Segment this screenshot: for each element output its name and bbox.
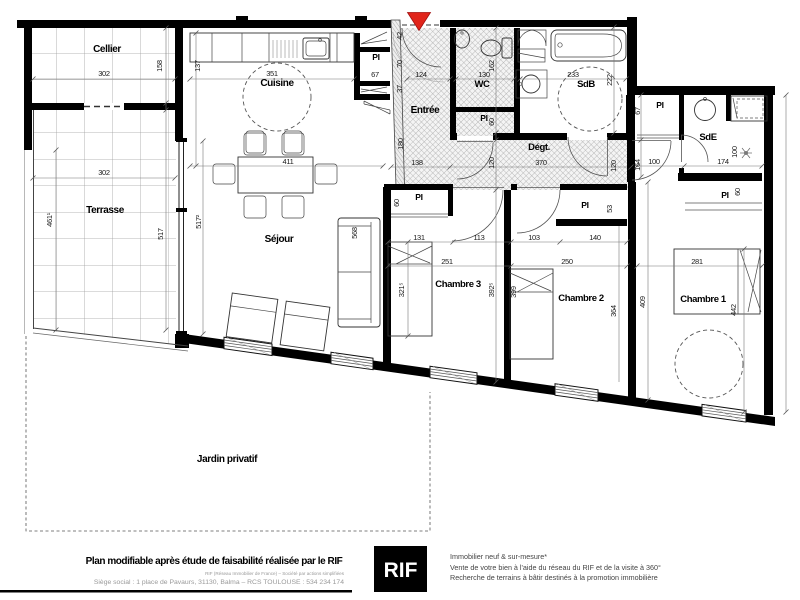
svg-text:364: 364 <box>609 305 618 317</box>
svg-text:42: 42 <box>395 32 404 40</box>
svg-text:392⁵: 392⁵ <box>487 283 496 298</box>
svg-text:411: 411 <box>282 157 293 166</box>
svg-text:PI: PI <box>415 192 422 202</box>
svg-text:Jardin privatif: Jardin privatif <box>197 454 258 465</box>
svg-text:Chambre 2: Chambre 2 <box>558 293 604 304</box>
svg-text:103: 103 <box>528 233 540 242</box>
svg-text:222: 222 <box>605 74 614 86</box>
svg-text:409: 409 <box>638 296 647 308</box>
svg-text:PI: PI <box>581 200 588 210</box>
svg-text:120: 120 <box>609 160 618 172</box>
svg-text:53: 53 <box>605 205 614 213</box>
svg-text:67: 67 <box>633 107 642 115</box>
svg-text:Chambre 1: Chambre 1 <box>680 294 727 305</box>
svg-text:SdB: SdB <box>577 79 595 90</box>
svg-text:517: 517 <box>156 228 165 240</box>
svg-text:120: 120 <box>487 157 496 169</box>
svg-text:131: 131 <box>413 233 425 242</box>
svg-text:174: 174 <box>717 157 729 166</box>
svg-text:Siège social : 1 place de Pava: Siège social : 1 place de Pavaurs, 31130… <box>94 579 344 586</box>
svg-text:100: 100 <box>730 146 739 158</box>
svg-text:RIF (Réseau Immobilier de Fran: RIF (Réseau Immobilier de France) – Soci… <box>205 571 345 576</box>
svg-text:180: 180 <box>396 138 405 150</box>
svg-text:137: 137 <box>193 60 202 72</box>
svg-text:302: 302 <box>98 69 110 78</box>
svg-text:399: 399 <box>509 286 518 298</box>
svg-text:67: 67 <box>371 70 379 79</box>
svg-text:164: 164 <box>633 159 642 171</box>
svg-text:124: 124 <box>415 70 427 79</box>
svg-text:Cellier: Cellier <box>93 44 121 55</box>
svg-text:RIF: RIF <box>384 559 418 582</box>
svg-text:WC: WC <box>474 79 490 90</box>
svg-text:60: 60 <box>733 188 742 196</box>
svg-text:Entrée: Entrée <box>411 105 441 116</box>
svg-text:442: 442 <box>729 304 738 316</box>
svg-text:Vente de votre bien à l'aide d: Vente de votre bien à l'aide du réseau d… <box>450 563 661 572</box>
svg-text:Dégt.: Dégt. <box>528 142 550 153</box>
svg-text:158: 158 <box>155 60 164 72</box>
svg-text:517²: 517² <box>194 214 203 229</box>
svg-text:370: 370 <box>535 158 547 167</box>
svg-text:70: 70 <box>395 60 404 68</box>
svg-text:251: 251 <box>441 257 453 266</box>
svg-text:461¹: 461¹ <box>45 212 54 227</box>
svg-text:302: 302 <box>98 168 110 177</box>
svg-text:Séjour: Séjour <box>265 234 294 245</box>
svg-text:Recherche de terrains à bâtir: Recherche de terrains à bâtir destinés à… <box>450 573 658 582</box>
svg-text:100: 100 <box>648 157 660 166</box>
svg-text:PI: PI <box>372 52 379 62</box>
svg-text:SdE: SdE <box>699 132 716 143</box>
svg-text:351: 351 <box>266 69 278 78</box>
svg-text:568: 568 <box>350 227 359 239</box>
svg-text:138: 138 <box>411 158 423 167</box>
svg-text:113: 113 <box>473 233 484 242</box>
svg-text:162: 162 <box>487 60 496 72</box>
svg-text:321⁵: 321⁵ <box>397 283 406 298</box>
svg-text:Cuisine: Cuisine <box>260 78 294 89</box>
svg-text:PI: PI <box>656 100 663 110</box>
svg-text:281: 281 <box>691 257 703 266</box>
svg-text:Immobilier neuf & sur-mesure*: Immobilier neuf & sur-mesure* <box>450 552 547 561</box>
svg-text:60: 60 <box>487 118 496 126</box>
svg-text:Plan modifiable après étude de: Plan modifiable après étude de faisabili… <box>86 556 343 567</box>
svg-text:140: 140 <box>589 233 601 242</box>
svg-text:PI: PI <box>721 190 728 200</box>
svg-text:Terrasse: Terrasse <box>86 205 125 216</box>
svg-text:250: 250 <box>561 257 573 266</box>
svg-text:37: 37 <box>395 85 404 93</box>
svg-text:60: 60 <box>392 199 401 207</box>
svg-text:Chambre 3: Chambre 3 <box>435 279 481 290</box>
svg-text:233: 233 <box>567 70 579 79</box>
